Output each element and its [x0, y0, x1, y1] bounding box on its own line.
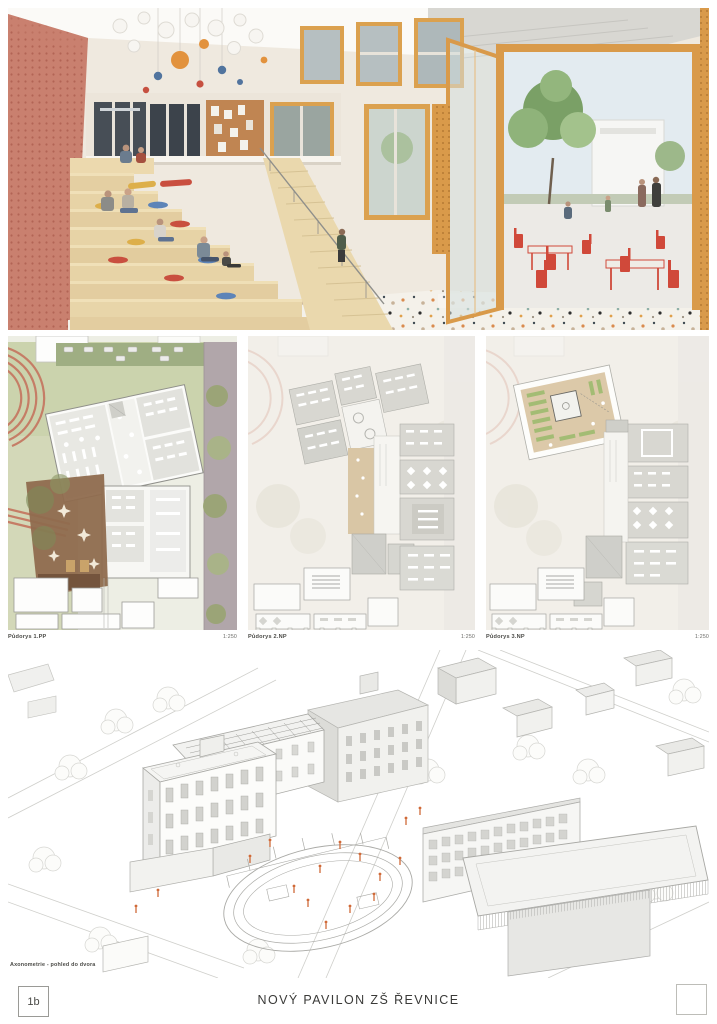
plan-2np-scale: 1:250 — [461, 634, 475, 640]
floor-plan-3np-image — [486, 336, 709, 630]
interior-render-panel — [8, 8, 709, 330]
open-glass-door — [448, 40, 502, 322]
plan-3np-label: Půdorys 3.NP — [486, 634, 525, 640]
axonometric-panel — [8, 650, 709, 978]
board-title: NOVÝ PAVILON ZŠ ŘEVNICE — [0, 993, 717, 1007]
floor-plan-1pp-image — [8, 336, 237, 630]
floor-plan-2np-panel: Půdorys 2.NP 1:250 — [248, 336, 475, 646]
perforated-screen — [700, 8, 709, 330]
axonometric-image — [8, 650, 709, 978]
floor-plan-2np-image — [248, 336, 475, 630]
floor-plan-3np-panel: Půdorys 3.NP 1:250 — [486, 336, 709, 646]
right-classrooms — [400, 424, 454, 540]
courtyard-view — [504, 51, 696, 308]
plan-1pp-scale: 1:250 — [223, 634, 237, 640]
axonometric-caption: Axonometrie - pohled do dvora — [10, 962, 95, 968]
empty-corner-box — [676, 984, 707, 1015]
terrace-strip — [348, 448, 374, 534]
plan-1pp-label: Půdorys 1.PP — [8, 634, 46, 640]
presentation-board: Půdorys 1.PP 1:250 — [0, 0, 717, 1024]
plan-2np-label: Půdorys 2.NP — [248, 634, 287, 640]
plan-3np-scale: 1:250 — [695, 634, 709, 640]
floor-plan-1pp-panel: Půdorys 1.PP 1:250 — [8, 336, 237, 646]
interior-render-image — [8, 8, 709, 330]
